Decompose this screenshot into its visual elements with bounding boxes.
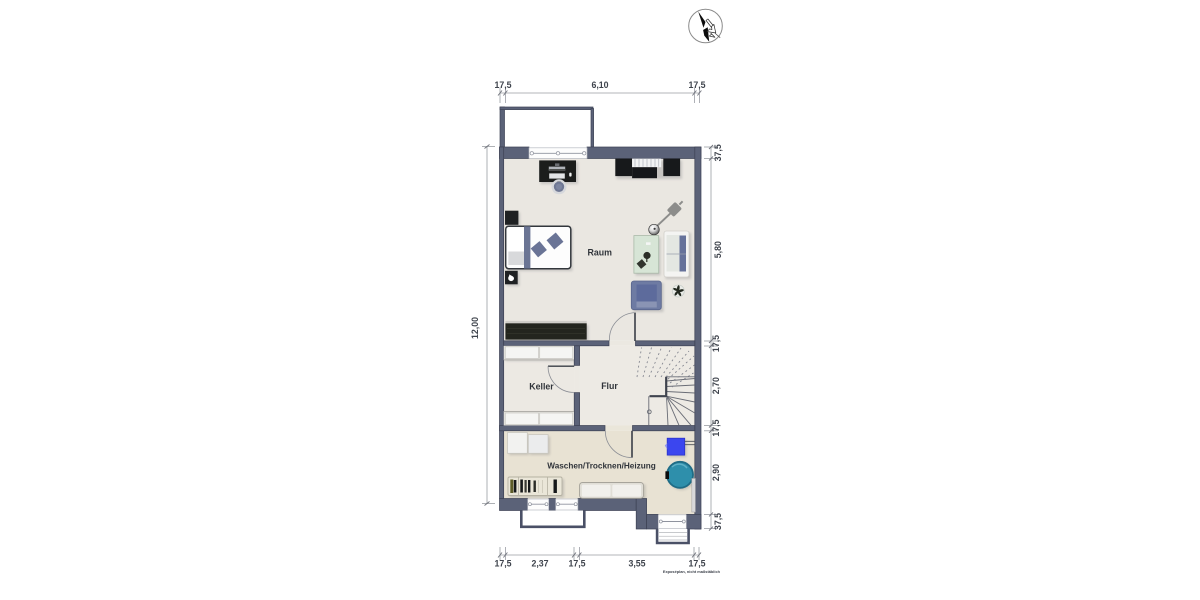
svg-text:17,5: 17,5 bbox=[711, 419, 721, 436]
svg-text:Flur: Flur bbox=[601, 381, 618, 391]
svg-text:3,55: 3,55 bbox=[628, 559, 645, 569]
svg-text:6,10: 6,10 bbox=[591, 80, 608, 90]
svg-text:12,00: 12,00 bbox=[470, 317, 480, 339]
svg-text:Raum: Raum bbox=[587, 248, 612, 258]
svg-text:2,90: 2,90 bbox=[711, 464, 721, 481]
svg-text:37,5: 37,5 bbox=[713, 144, 723, 161]
svg-text:17,5: 17,5 bbox=[688, 559, 705, 569]
svg-text:17,5: 17,5 bbox=[711, 335, 721, 352]
svg-text:17,5: 17,5 bbox=[568, 559, 585, 569]
svg-text:17,5: 17,5 bbox=[494, 559, 511, 569]
svg-text:2,37: 2,37 bbox=[531, 559, 548, 569]
svg-text:37,5: 37,5 bbox=[713, 513, 723, 530]
svg-text:Exposéplan, nicht maßstäblich: Exposéplan, nicht maßstäblich bbox=[663, 569, 721, 574]
svg-text:17,5: 17,5 bbox=[494, 80, 511, 90]
svg-text:Keller: Keller bbox=[529, 382, 554, 392]
svg-text:5,80: 5,80 bbox=[713, 241, 723, 258]
svg-text:2,70: 2,70 bbox=[711, 377, 721, 394]
svg-text:Waschen/Trocknen/Heizung: Waschen/Trocknen/Heizung bbox=[547, 462, 655, 471]
svg-text:17,5: 17,5 bbox=[688, 80, 705, 90]
